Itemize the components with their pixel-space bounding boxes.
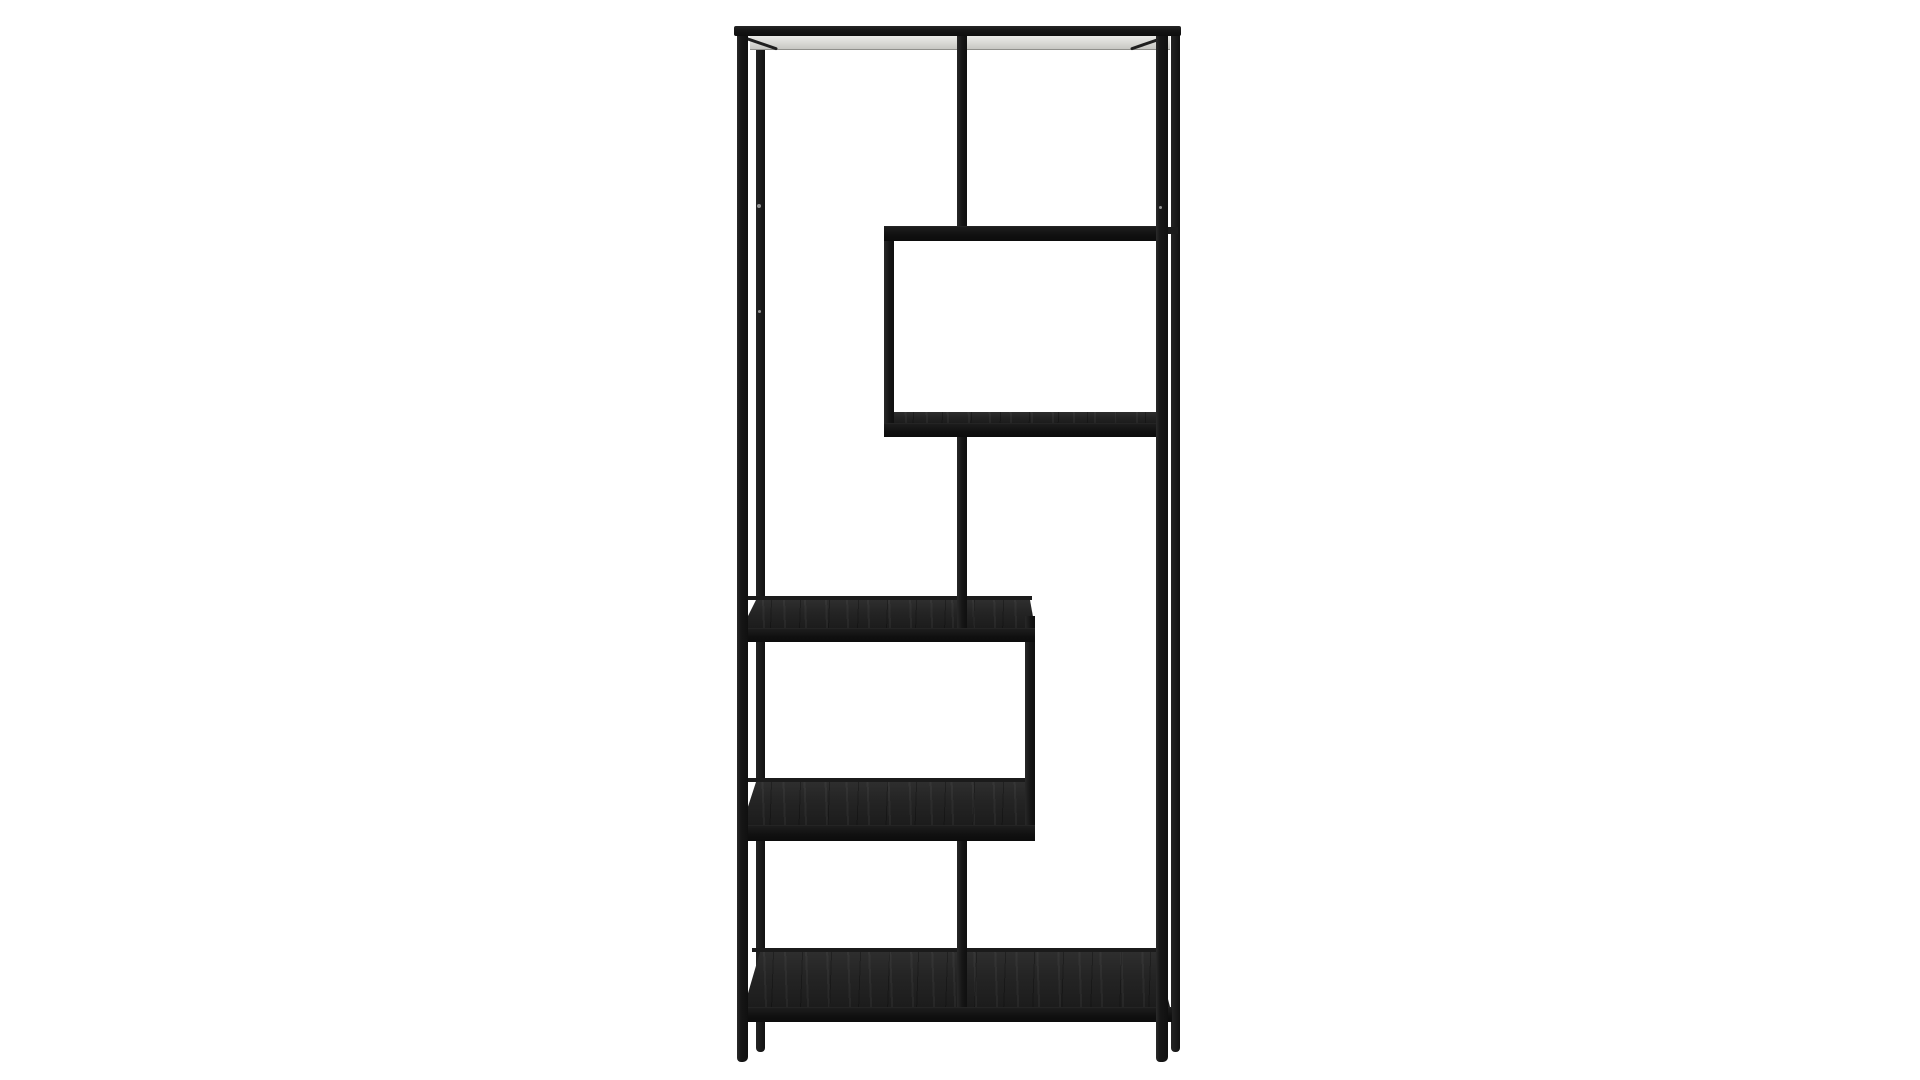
mid-right-upright: [1025, 616, 1035, 836]
shelf-e-front-edge: [740, 1007, 1172, 1022]
shelf-c-front-edge: [740, 628, 1035, 642]
shelf-b-front-edge: [884, 423, 1168, 437]
shelf-c-surface: [742, 600, 1035, 628]
top-frame-bar: [734, 26, 1181, 36]
screw-dot-right: [1159, 206, 1162, 209]
screw-dot-left-lower: [758, 310, 761, 313]
shelf-a-board: [884, 226, 1168, 241]
bookcase-product-image: Tall black metal asymmetric open bookcas…: [0, 0, 1920, 1080]
mid-center-divider: [957, 430, 967, 636]
shelf-d-surface: [742, 782, 1035, 825]
back-post-right: [1171, 33, 1180, 1052]
front-post-left: [737, 26, 748, 1062]
shelf-b-surface: [884, 412, 1168, 423]
back-post-left: [756, 33, 765, 1052]
shelf-d-back-rail: [748, 778, 1032, 782]
lower-center-divider: [957, 838, 967, 1014]
screw-dot-left-upper: [757, 204, 761, 208]
front-post-right: [1156, 26, 1168, 1062]
shelf-c-back-rail: [748, 596, 1032, 600]
shelf-d-front-edge: [740, 825, 1035, 841]
box-left-upright: [884, 228, 894, 430]
top-center-divider: [957, 30, 967, 232]
